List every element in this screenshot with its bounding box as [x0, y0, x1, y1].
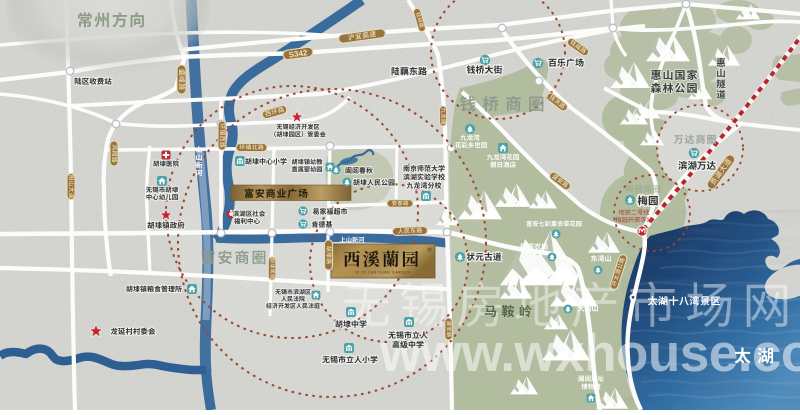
svg-text:XI XI LAN YUAN GARDEN: XI XI LAN YUAN GARDEN — [355, 271, 410, 275]
